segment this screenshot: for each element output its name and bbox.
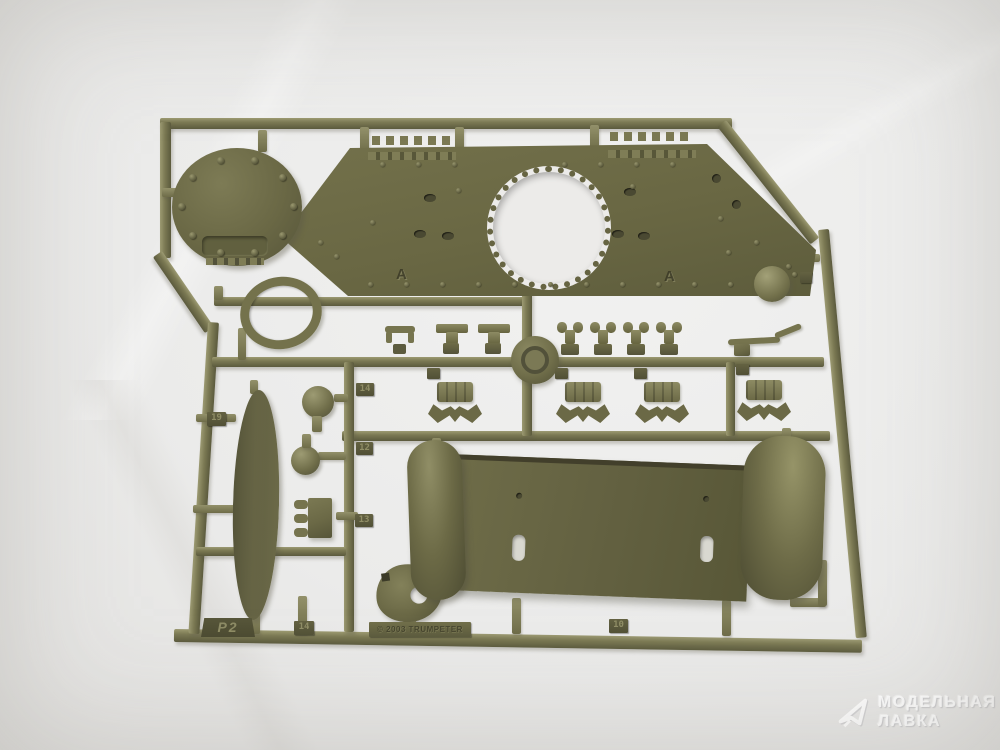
part-number-tag: 12 — [356, 442, 373, 455]
rivet-dot — [754, 240, 759, 245]
hatch-bolt — [251, 157, 258, 164]
hinge-strip — [608, 150, 696, 158]
rivet-dot — [456, 188, 461, 193]
hatch-recess — [202, 236, 268, 256]
small-winged-bracket-part — [655, 322, 683, 358]
panel-hole — [638, 232, 650, 240]
hatch-ring-part — [233, 269, 328, 356]
rivet-dot — [692, 282, 697, 287]
rivet-dot — [670, 162, 675, 167]
rivet-dot — [440, 282, 445, 287]
hatch-bolt — [217, 157, 224, 164]
hinge-comb — [372, 136, 452, 145]
rivet-dot — [368, 282, 373, 287]
small-u-bracket-part — [385, 326, 415, 356]
rivet-dot — [584, 282, 589, 287]
prong — [294, 528, 308, 537]
small-flat-bracket-part — [436, 324, 468, 356]
tow-hook-ball-part — [302, 386, 334, 418]
rivet-dot — [548, 282, 553, 287]
hatch-bolt — [279, 174, 286, 181]
rivet-dot — [656, 282, 661, 287]
panel-hole — [732, 200, 741, 209]
part-number-tag: 13 — [355, 514, 373, 527]
part-number-tag-small — [427, 368, 440, 379]
hull-plate-part — [452, 454, 751, 601]
rivet-dot — [726, 250, 731, 255]
connector-stub — [318, 452, 346, 460]
rivet-dot — [370, 220, 375, 225]
panel-hole — [712, 174, 721, 183]
inner-rail-h432 — [342, 431, 830, 441]
connector-stub — [258, 130, 267, 152]
panel-letter-A: A — [664, 268, 675, 285]
rivet-dot — [786, 264, 791, 269]
hatch-bolt — [279, 232, 286, 239]
rivet-dot — [598, 162, 603, 167]
hull-roof-panel-part: A A — [280, 140, 820, 298]
rivet-dot — [452, 162, 457, 167]
hatch-hinge-detail — [206, 258, 264, 265]
hatch-bolt — [189, 174, 196, 181]
plate-slot — [512, 535, 526, 561]
connector-stub — [334, 394, 348, 402]
inner-rail-v-rightcol — [726, 362, 735, 436]
photo-canvas: A A — [0, 0, 1000, 750]
connector-stub — [214, 286, 223, 300]
watermark-logo-icon — [832, 692, 870, 732]
part-number-tag: 19 — [207, 412, 226, 426]
idler-ring-center — [521, 346, 549, 374]
watermark-line2: ЛАВКА — [878, 712, 996, 731]
part-number-tag: 14 — [356, 383, 374, 396]
rivet-dot — [718, 216, 723, 221]
panel-hole — [612, 230, 624, 238]
rivet-dot — [728, 282, 733, 287]
rivet-dot — [512, 282, 517, 287]
connector-stub — [512, 598, 521, 634]
fender-dome-part-right — [739, 435, 827, 602]
small-winged-bracket-part — [556, 322, 584, 358]
part-number-tag-small — [800, 272, 812, 283]
hatch-bolt — [189, 232, 196, 239]
rod-bracket-part — [734, 344, 750, 356]
part-number-tag-small — [555, 368, 568, 379]
mount-bracket-part — [556, 382, 610, 428]
small-winged-bracket-part — [589, 322, 617, 358]
ventilator-dome-part — [754, 266, 790, 302]
prong — [294, 500, 308, 509]
hatch-bolt — [251, 249, 258, 256]
prong — [294, 514, 308, 523]
rivet-dot — [380, 162, 385, 167]
panel-hole — [424, 194, 436, 202]
idler-ring-part — [511, 336, 559, 384]
connector-stub — [722, 600, 731, 636]
inner-rail-v-leftcol — [344, 362, 354, 632]
thin-rod-part — [774, 323, 802, 339]
rivet-dot — [562, 162, 567, 167]
plate-hole — [703, 496, 709, 502]
part-number-tag: 14 — [294, 621, 314, 635]
rivet-dot — [318, 240, 323, 245]
panel-letter-A: A — [396, 266, 407, 283]
part-number-tag: 10 — [609, 619, 628, 633]
sprue-frame-top-rail — [160, 118, 732, 129]
fender-dome-part-left — [406, 439, 467, 601]
copyright-embossing: © 2003 TRUMPETER — [369, 622, 471, 637]
watermark: МОДЕЛЬНАЯ ЛАВКА — [832, 692, 996, 732]
rivet-dot — [476, 282, 481, 287]
panel-hole — [624, 188, 636, 196]
sprue-frame-left-diagonal — [153, 251, 214, 333]
small-winged-bracket-part — [622, 322, 650, 358]
plate-slot — [700, 536, 714, 562]
sprue-letter-tab: P2 — [201, 618, 255, 637]
ball-part-stem — [312, 416, 322, 432]
rivet-dot — [792, 272, 797, 277]
housing-notch — [381, 573, 390, 582]
plate-hole — [516, 493, 522, 499]
hatch-bolt — [178, 203, 185, 210]
rivet-dot — [630, 184, 635, 189]
ball-part-stem — [302, 434, 311, 448]
panel-hole — [442, 232, 454, 240]
tow-hook-ball-part — [291, 446, 320, 475]
rivet-dot — [334, 254, 339, 259]
small-flat-bracket-part — [478, 324, 510, 356]
connector-stub — [193, 505, 235, 513]
prong-bracket-part — [308, 498, 332, 538]
mount-bracket-part — [737, 380, 791, 426]
mount-bracket-part — [428, 382, 482, 428]
mount-bracket-part — [635, 382, 689, 428]
hatch-cover-part — [172, 148, 302, 266]
rivet-dot — [416, 162, 421, 167]
rivet-dot — [404, 282, 409, 287]
plate-top-edge — [458, 454, 752, 470]
hinge-strip — [368, 152, 456, 160]
part-number-tag-small — [634, 368, 647, 379]
hatch-bolt — [217, 249, 224, 256]
watermark-line1: МОДЕЛЬНАЯ — [878, 693, 996, 712]
sprue-frame-left-rail-lower — [188, 322, 219, 634]
turret-ring-opening — [487, 166, 611, 290]
fender-blade-part — [230, 389, 282, 620]
paper-crease — [0, 380, 380, 750]
hinge-comb — [610, 132, 690, 141]
rivet-dot — [634, 162, 639, 167]
rivet-dot — [620, 282, 625, 287]
hatch-bolt — [290, 203, 297, 210]
part-number-tag-small — [736, 364, 749, 375]
panel-hole — [414, 230, 426, 238]
